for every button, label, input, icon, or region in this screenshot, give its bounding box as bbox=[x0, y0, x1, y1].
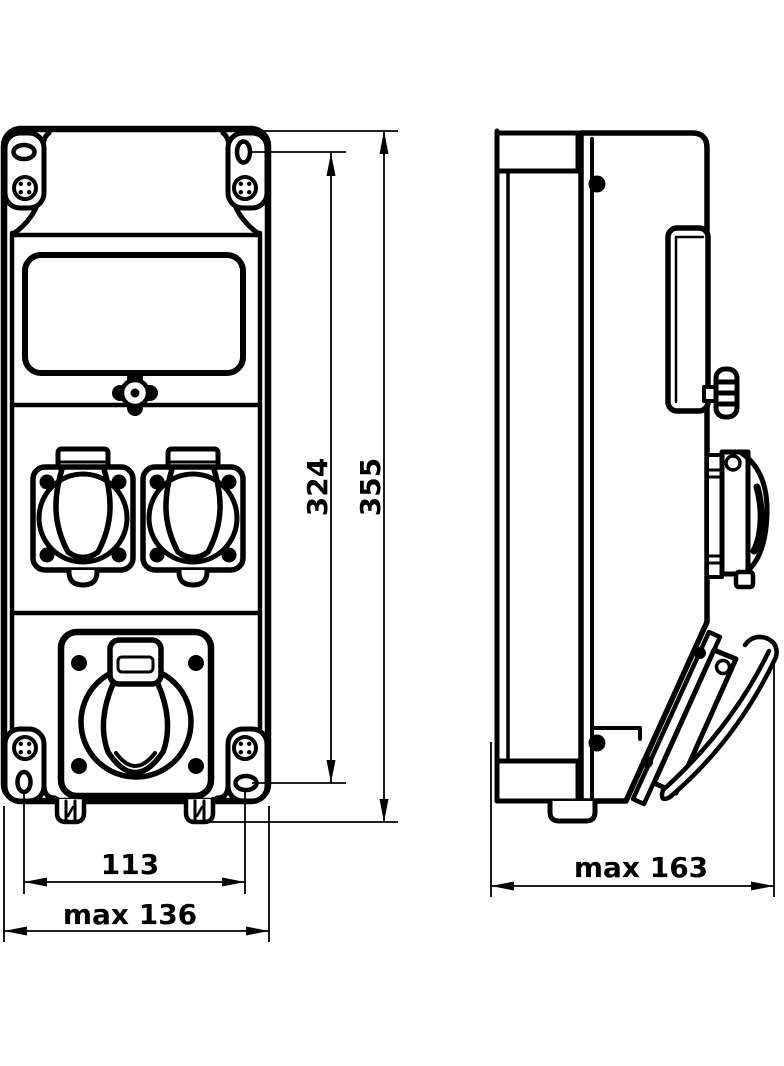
mounting-slot bbox=[14, 145, 35, 159]
cee-socket-front bbox=[61, 632, 211, 796]
schuko-socket-side bbox=[707, 452, 767, 587]
schuko-socket-right bbox=[143, 449, 243, 585]
screw-icon bbox=[234, 177, 256, 199]
technical-drawing: 324 355 113 max 136 bbox=[0, 0, 784, 1066]
dim-label-mounting-height: 324 bbox=[301, 458, 334, 516]
side-view: max 163 bbox=[491, 131, 777, 897]
screw-icon bbox=[589, 735, 606, 752]
screw-icon bbox=[14, 737, 36, 759]
drawing-canvas: 324 355 113 max 136 bbox=[0, 0, 784, 1066]
socket-ring bbox=[39, 474, 127, 562]
mounting-slot bbox=[18, 772, 31, 792]
mounting-tab-top bbox=[497, 133, 578, 171]
dim-label-mounting-width: 113 bbox=[101, 848, 159, 881]
foot-side bbox=[550, 801, 595, 821]
mounting-plate bbox=[497, 131, 578, 801]
lid-latch bbox=[736, 572, 753, 587]
foot-right bbox=[186, 799, 213, 822]
screw-icon bbox=[589, 176, 606, 193]
screw-icon bbox=[717, 661, 730, 674]
mounting-tab-bottom bbox=[497, 761, 578, 801]
foot-left bbox=[57, 799, 84, 822]
mounting-slot bbox=[237, 142, 250, 163]
front-view: 324 355 113 max 136 bbox=[4, 129, 398, 942]
window-cover-side bbox=[668, 228, 708, 411]
screw-icon bbox=[14, 177, 36, 199]
socket-ring bbox=[149, 474, 237, 562]
dim-label-overall-depth: max 163 bbox=[574, 851, 708, 884]
screw-icon bbox=[726, 456, 740, 470]
lid-latch bbox=[179, 570, 207, 585]
schuko-socket-left bbox=[33, 449, 133, 585]
lid-latch bbox=[69, 570, 97, 585]
dim-label-overall-height: 355 bbox=[354, 458, 387, 516]
mounting-ear-top-left bbox=[5, 133, 44, 208]
mounting-ear-bottom-right bbox=[228, 729, 267, 801]
mounting-ear-top-right bbox=[228, 133, 267, 208]
screw-icon bbox=[234, 737, 256, 759]
dim-label-overall-width: max 136 bbox=[63, 898, 197, 931]
